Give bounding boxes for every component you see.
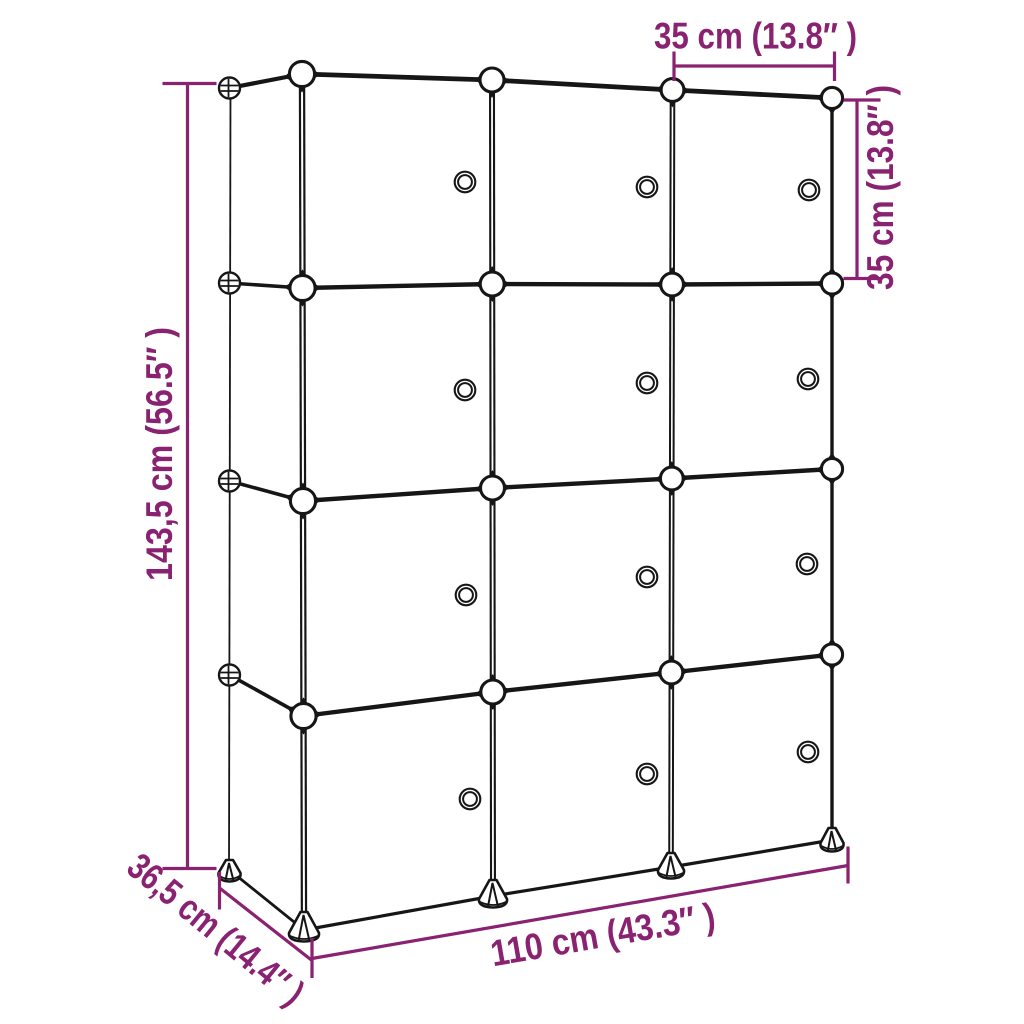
svg-text:35 cm (13.8″ ): 35 cm (13.8″ ) [860, 85, 901, 290]
svg-text:143,5 cm (56.5″ ): 143,5 cm (56.5″ ) [139, 327, 180, 581]
svg-text:35 cm (13.8″ ): 35 cm (13.8″ ) [654, 16, 857, 57]
svg-text:36,5 cm (14.4″ ): 36,5 cm (14.4″ ) [120, 845, 312, 1013]
